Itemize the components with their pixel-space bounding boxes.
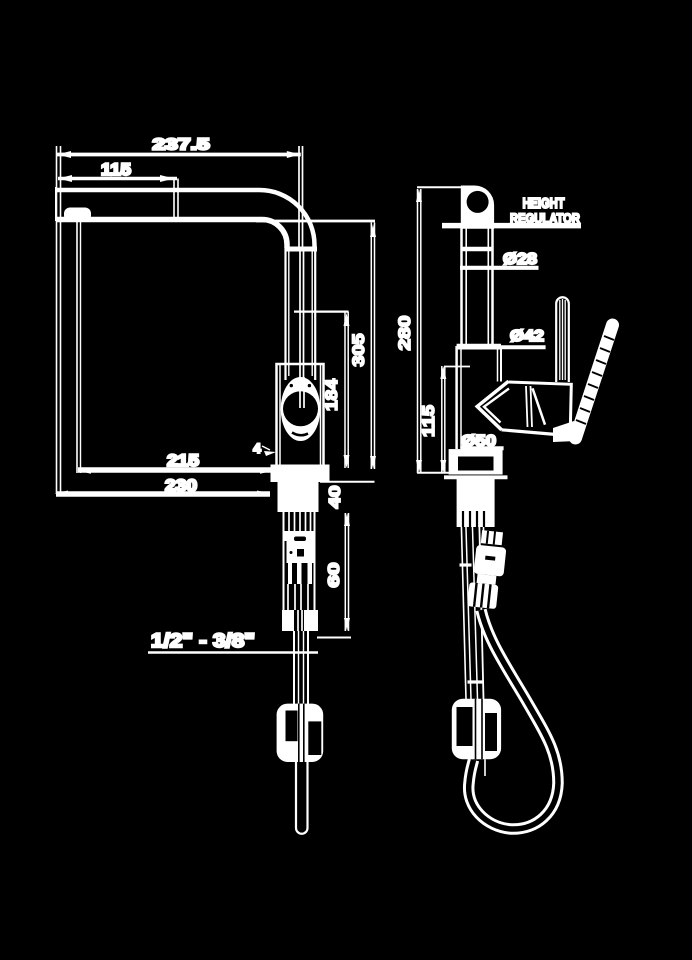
svg-text:230: 230: [165, 476, 197, 495]
svg-text:Ø42: Ø42: [510, 328, 544, 345]
svg-text:60: 60: [326, 562, 343, 587]
svg-text:115: 115: [101, 160, 131, 179]
svg-text:215: 215: [167, 451, 199, 470]
svg-text:305: 305: [349, 334, 368, 367]
svg-text:115: 115: [419, 405, 438, 437]
svg-text:4: 4: [253, 440, 261, 456]
svg-text:40: 40: [327, 485, 344, 508]
svg-text:237.5: 237.5: [153, 137, 210, 154]
svg-text:1/2" - 3/8": 1/2" - 3/8": [151, 631, 255, 652]
svg-text:280: 280: [395, 316, 414, 351]
svg-text:Ø28: Ø28: [503, 251, 537, 268]
svg-text:184: 184: [322, 378, 341, 411]
